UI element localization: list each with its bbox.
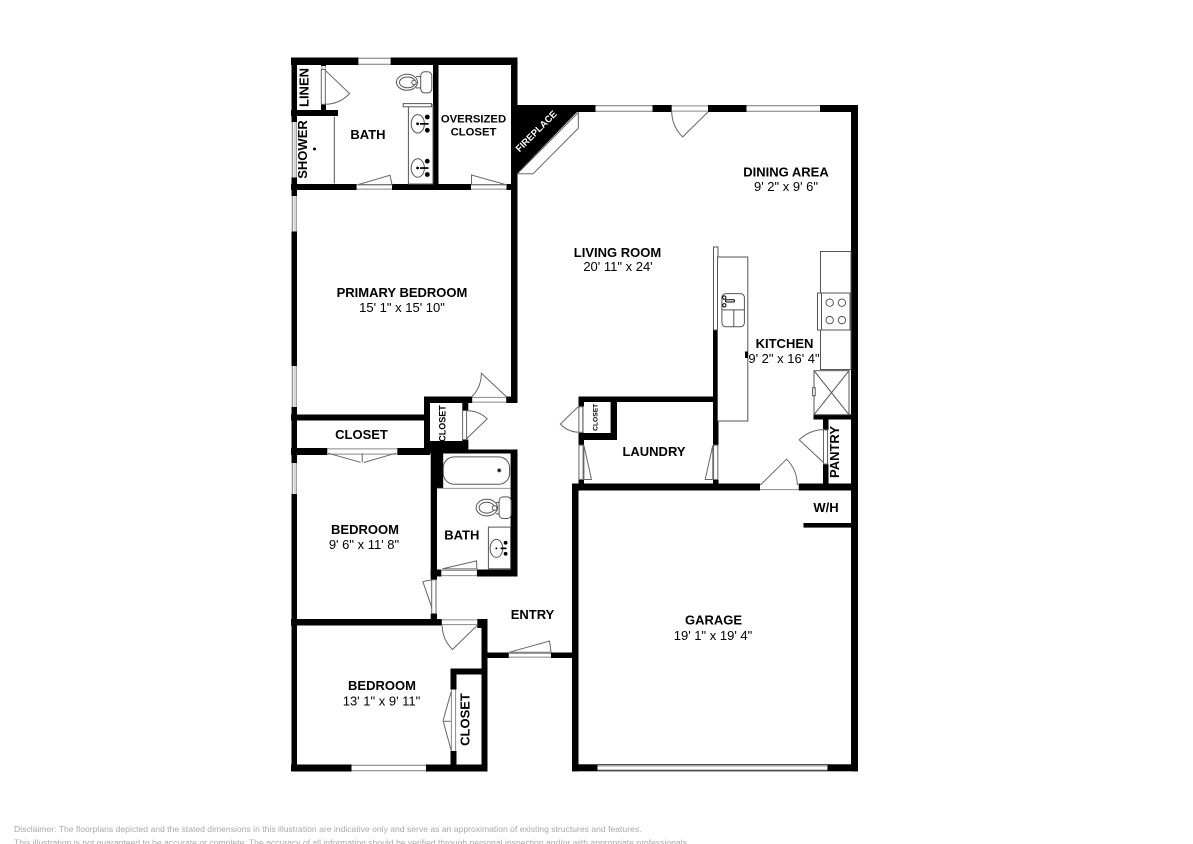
svg-text:BEDROOM: BEDROOM <box>348 678 416 693</box>
svg-text:19' 1" x 19' 4": 19' 1" x 19' 4" <box>674 628 753 643</box>
svg-text:LAUNDRY: LAUNDRY <box>622 444 685 459</box>
svg-text:15' 1" x 15' 10": 15' 1" x 15' 10" <box>359 300 445 315</box>
svg-text:9' 2" x 16' 4": 9' 2" x 16' 4" <box>748 351 820 366</box>
svg-text:ENTRY: ENTRY <box>511 607 555 622</box>
svg-text:KITCHEN: KITCHEN <box>756 336 814 351</box>
svg-text:BEDROOM: BEDROOM <box>331 522 399 537</box>
svg-text:CLOSET: CLOSET <box>457 693 472 746</box>
svg-text:9' 2" x 9' 6": 9' 2" x 9' 6" <box>754 179 818 194</box>
svg-text:GARAGE: GARAGE <box>685 613 742 628</box>
svg-text:OVERSIZED: OVERSIZED <box>441 114 506 126</box>
svg-text:20' 11" x 24': 20' 11" x 24' <box>583 259 652 274</box>
svg-text:DINING AREA: DINING AREA <box>743 165 829 180</box>
svg-text:CLOSET: CLOSET <box>593 403 600 431</box>
svg-text:PANTRY: PANTRY <box>827 426 842 478</box>
svg-text:W/H: W/H <box>813 500 838 515</box>
svg-text:LINEN: LINEN <box>297 68 312 107</box>
svg-text:This illustration is not guara: This illustration is not guaranteed to b… <box>14 838 689 844</box>
svg-text:SHOWER: SHOWER <box>295 120 310 179</box>
svg-text:LIVING ROOM: LIVING ROOM <box>574 245 661 260</box>
svg-text:9' 6" x 11' 8": 9' 6" x 11' 8" <box>329 537 400 552</box>
svg-text:BATH: BATH <box>350 127 385 142</box>
svg-text:13' 1" x 9' 11": 13' 1" x 9' 11" <box>343 694 421 709</box>
svg-text:BATH: BATH <box>444 528 479 543</box>
svg-text:CLOSET: CLOSET <box>335 427 388 442</box>
svg-text:Disclaimer: The floorplans dep: Disclaimer: The floorplans depicted and … <box>14 824 642 834</box>
svg-text:CLOSET: CLOSET <box>451 127 497 139</box>
svg-text:CLOSET: CLOSET <box>438 405 448 442</box>
svg-text:PRIMARY BEDROOM: PRIMARY BEDROOM <box>337 285 468 300</box>
